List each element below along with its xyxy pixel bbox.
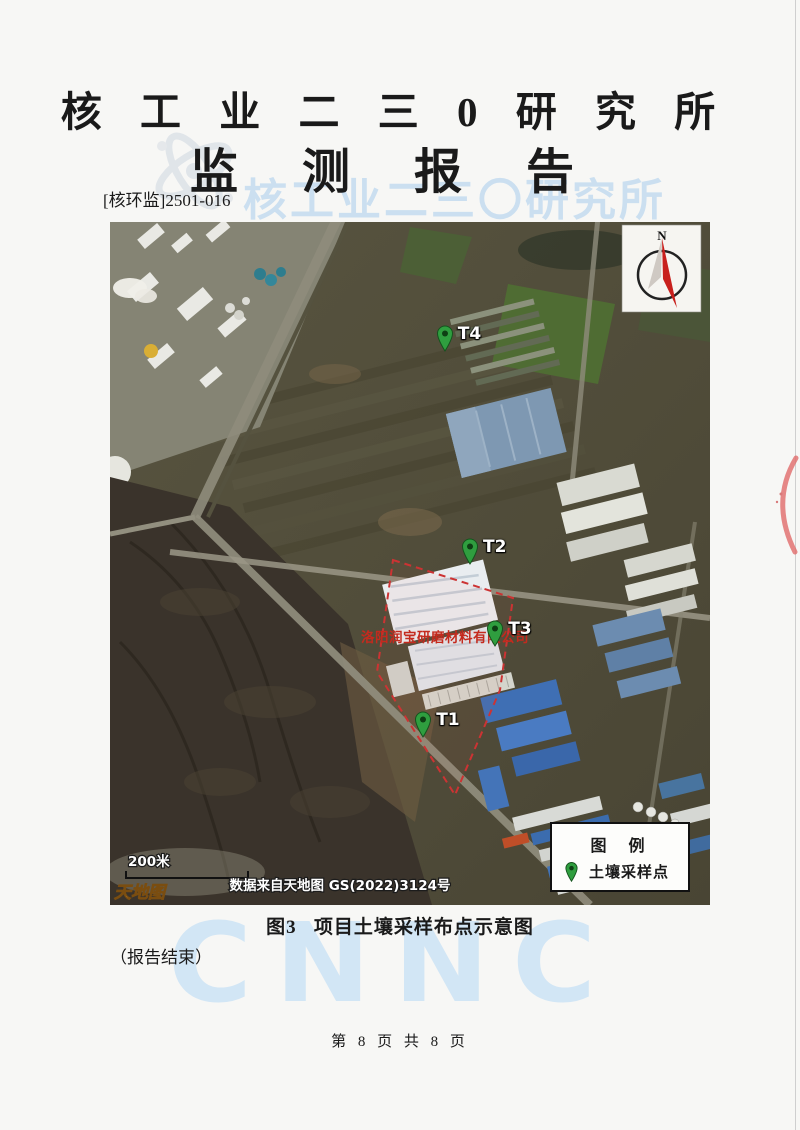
satellite-map: 洛阳润宝研磨材料有限公司 200米 天地图 数据来自天地图 GS(2022)31… xyxy=(110,222,710,905)
sample-point-label: T3 xyxy=(508,619,531,639)
org-title: 核 工 业 二 三 0 研 究 所 xyxy=(0,78,790,138)
soil-sample-point-t4: T4 xyxy=(435,324,455,352)
map-legend: 图 例 土壤采样点 xyxy=(550,822,690,892)
sample-point-label: T1 xyxy=(436,710,459,730)
sample-point-label: T4 xyxy=(458,324,481,344)
page-number: 第 8 页 共 8 页 xyxy=(0,1030,800,1051)
report-end-note: （报告结束） xyxy=(110,943,212,968)
map-pin-icon xyxy=(435,324,455,352)
soil-sample-point-t1: T1 xyxy=(413,710,433,738)
map-pin-icon xyxy=(460,537,480,565)
legend-item-label: 土壤采样点 xyxy=(589,861,669,882)
north-arrow: N xyxy=(622,225,701,312)
scale-label: 200米 xyxy=(128,853,170,870)
map-attribution: 数据来自天地图 GS(2022)3124号 xyxy=(230,877,451,894)
legend-title: 图 例 xyxy=(564,832,688,856)
soil-sample-point-t3: T3 xyxy=(485,619,505,647)
satellite-imagery: 洛阳润宝研磨材料有限公司 200米 天地图 数据来自天地图 GS(2022)31… xyxy=(110,222,710,905)
doc-number: [核环监]2501-016 xyxy=(103,186,230,211)
tianditu-logo: 天地图 xyxy=(114,883,168,903)
map-pin-icon xyxy=(485,619,505,647)
soil-sample-point-t2: T2 xyxy=(460,537,480,565)
scan-edge-line xyxy=(795,0,796,1130)
figure-caption: 图3 项目土壤采样布点示意图 xyxy=(0,912,800,939)
sample-point-label: T2 xyxy=(483,537,506,557)
red-seal-edge xyxy=(760,450,800,560)
map-pin-icon xyxy=(413,710,433,738)
legend-pin-icon xyxy=(564,861,579,882)
